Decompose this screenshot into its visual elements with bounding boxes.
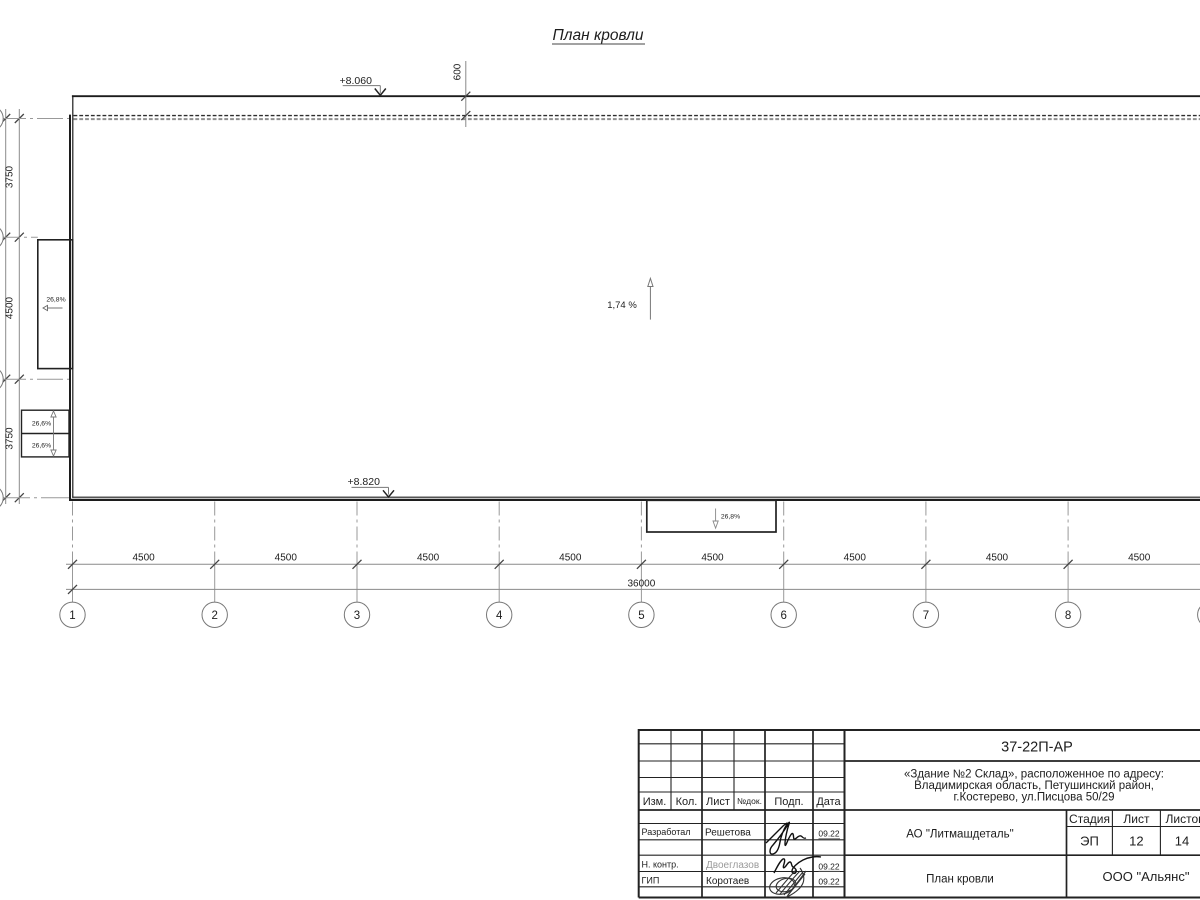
svg-text:Коротаев: Коротаев [706,876,749,887]
svg-text:г.Костерево, ул.Писцова 50/29: г.Костерево, ул.Писцова 50/29 [954,792,1115,804]
svg-text:09.22: 09.22 [818,862,840,872]
svg-text:АО "Литмашдеталь": АО "Литмашдеталь" [906,829,1013,841]
svg-text:Подп.: Подп. [774,796,803,808]
svg-text:26,6%: 26,6% [32,421,51,428]
svg-text:3750: 3750 [5,427,16,450]
svg-text:3: 3 [354,610,360,622]
svg-text:4500: 4500 [5,296,16,319]
svg-text:37-22П-АР: 37-22П-АР [1001,740,1073,756]
svg-text:26,6%: 26,6% [32,443,51,450]
svg-text:7: 7 [923,610,929,622]
svg-text:4500: 4500 [132,553,155,564]
svg-text:09.22: 09.22 [818,877,840,887]
svg-text:Изм.: Изм. [643,796,667,808]
svg-text:№док.: №док. [737,796,762,806]
svg-text:12000: 12000 [0,286,2,314]
svg-text:Владимирская область, Петушинс: Владимирская область, Петушинский район, [914,780,1154,792]
svg-text:Н. контр.: Н. контр. [642,860,679,870]
svg-text:14: 14 [1175,834,1189,849]
svg-text:Двоеглазов: Двоеглазов [706,860,759,871]
svg-text:600: 600 [453,63,464,80]
svg-text:Кол.: Кол. [676,796,698,808]
svg-text:«Здание №2 Склад», расположенн: «Здание №2 Склад», расположенное по адре… [904,769,1164,781]
svg-text:4500: 4500 [986,553,1009,564]
svg-text:4: 4 [496,610,503,622]
svg-text:Разработал: Разработал [642,827,691,837]
svg-text:Стадия: Стадия [1069,812,1110,826]
svg-text:4500: 4500 [1128,553,1151,564]
svg-text:09.22: 09.22 [818,829,840,839]
svg-text:26,8%: 26,8% [46,297,65,304]
svg-text:Листов: Листов [1166,812,1200,826]
svg-text:4500: 4500 [844,553,867,564]
svg-text:Лист: Лист [1123,812,1150,826]
svg-text:ООО "Альянс": ООО "Альянс" [1103,869,1190,884]
svg-text:36000: 36000 [627,579,655,590]
svg-text:4500: 4500 [275,553,298,564]
svg-text:План кровли: План кровли [926,874,994,886]
svg-text:6: 6 [780,610,786,622]
svg-text:ЭП: ЭП [1080,834,1099,849]
svg-text:1: 1 [69,610,75,622]
svg-text:ГИП: ГИП [642,876,660,886]
svg-text:12: 12 [1129,834,1143,849]
svg-text:Дата: Дата [816,796,841,808]
svg-text:Решетова: Решетова [705,828,751,839]
svg-text:4500: 4500 [701,553,724,564]
svg-text:+8.820: +8.820 [348,476,381,488]
svg-text:Лист: Лист [706,796,730,808]
svg-text:26,8%: 26,8% [721,514,740,521]
svg-text:8: 8 [1065,610,1071,622]
svg-text:План кровли: План кровли [553,27,644,44]
svg-text:3750: 3750 [5,165,16,188]
svg-text:4500: 4500 [559,553,582,564]
svg-text:4500: 4500 [417,553,440,564]
svg-text:2: 2 [211,610,217,622]
svg-text:1,74 %: 1,74 % [607,300,637,311]
svg-text:5: 5 [638,610,644,622]
